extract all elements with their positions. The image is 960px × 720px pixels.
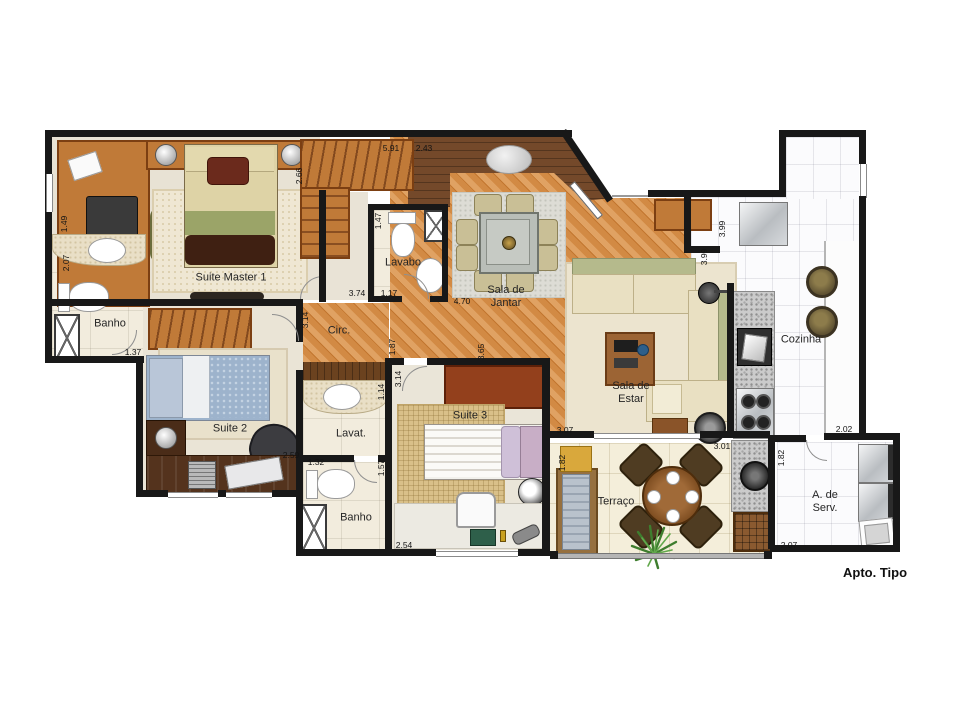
circ-threshold	[303, 362, 385, 380]
bed3-throw	[501, 426, 521, 478]
grill	[740, 461, 770, 491]
terrace-plate	[666, 471, 680, 485]
bed2-duvet	[209, 356, 267, 418]
lavabo-toilet	[391, 223, 415, 257]
bed2-pillows	[149, 358, 183, 418]
dim-label: 3.07	[557, 425, 574, 435]
dim-label: 3.99	[699, 249, 709, 266]
burner	[756, 394, 771, 409]
bedside-lamp-left	[155, 144, 177, 166]
dim-label: 2.54	[396, 540, 413, 550]
plant	[628, 524, 680, 570]
wall	[45, 130, 52, 363]
dryer	[858, 483, 897, 522]
banho1-shower	[54, 314, 80, 362]
dim-label: 2.02	[836, 424, 853, 434]
window	[168, 492, 218, 498]
bed-blanket-olive	[185, 211, 275, 235]
window	[226, 492, 272, 498]
banho1-toilet	[69, 282, 109, 312]
banho2-shower	[301, 504, 327, 552]
banho2-toilet	[317, 469, 355, 499]
wall	[770, 435, 806, 442]
wall	[768, 437, 775, 549]
wall-tv	[698, 282, 720, 304]
wall	[368, 204, 448, 210]
room-label-sala-de-estar: Sala de Estar	[612, 380, 649, 406]
dining-chair	[456, 245, 478, 271]
room-label-banho1: Banho	[94, 317, 126, 330]
dining-table	[479, 212, 539, 274]
wall	[430, 296, 448, 302]
dim-label: 2.59	[283, 450, 300, 460]
coffee-table-tray	[614, 340, 638, 352]
wall	[45, 299, 302, 306]
room-label-lavabo: Lavabo	[385, 256, 421, 269]
label-line: A. de	[812, 489, 838, 502]
dim-label: 3.01	[714, 441, 731, 451]
desk2-books	[188, 461, 216, 489]
coffee-table-decor	[637, 344, 649, 356]
wardrobe-suite2	[148, 308, 252, 350]
window	[436, 551, 518, 557]
dim-label: 3.14	[393, 371, 403, 388]
dim-label: 2.07	[781, 540, 798, 550]
banho1-sink	[88, 238, 126, 263]
stove	[736, 388, 774, 437]
bed-foot-throw	[185, 235, 275, 265]
dim-label: 1.82	[776, 450, 786, 467]
terrace-railing	[555, 553, 767, 559]
wall	[45, 130, 572, 137]
wall	[296, 455, 303, 556]
fridge	[739, 202, 788, 246]
window	[860, 164, 867, 198]
wall	[272, 490, 303, 497]
dim-label: 2.43	[416, 143, 433, 153]
wall	[136, 358, 143, 497]
wall	[392, 358, 404, 365]
wall	[550, 551, 558, 559]
wall	[45, 356, 144, 363]
dim-label: 2.66	[294, 168, 304, 185]
room-label-terraco: Terraço	[598, 495, 635, 508]
bar-stool	[806, 266, 838, 298]
room-label-lavat: Lavat.	[336, 427, 366, 440]
wall	[296, 370, 303, 459]
plan-title: Apto. Tipo	[843, 565, 907, 580]
bed2-sheet	[183, 356, 210, 418]
notebook	[470, 529, 496, 546]
dim-label: 1.17	[381, 288, 398, 298]
bed3-duvet	[425, 425, 501, 477]
burner	[741, 394, 756, 409]
suite3-chair	[456, 492, 496, 528]
room-label-suite2: Suite 2	[213, 422, 247, 435]
room-label-banho2: Banho	[340, 511, 372, 524]
burner	[741, 415, 756, 430]
wall	[859, 196, 866, 437]
label-line: Sala de	[612, 380, 649, 393]
wall	[700, 431, 770, 438]
room-label-suite-master1: Suite Master 1	[196, 271, 267, 284]
kitchen-sink-basin	[741, 334, 767, 363]
lavat-sink	[323, 384, 361, 410]
laundry-sink-basin	[864, 523, 890, 545]
wall	[389, 549, 436, 556]
tv-bracket	[714, 290, 728, 293]
dim-label: 1.37	[125, 347, 142, 357]
coffee-table-tray	[614, 358, 638, 368]
lounger-cushion	[562, 474, 590, 550]
room-label-circ: Circ.	[328, 324, 351, 337]
dim-label: 1.57	[376, 460, 386, 477]
wall	[218, 490, 226, 497]
wall	[319, 190, 326, 302]
burner	[756, 415, 771, 430]
sofa-pillow	[652, 384, 682, 414]
room-label-suite3: Suite 3	[453, 409, 487, 422]
floor-speaker	[694, 412, 726, 444]
bed-suite-master	[184, 144, 278, 268]
jantar-buffet	[654, 199, 712, 231]
label-line: Jantar	[487, 297, 524, 310]
dim-label: 1.82	[557, 455, 567, 472]
entry-console	[486, 145, 532, 174]
entry-threshold	[612, 195, 650, 197]
dim-label: 1.47	[373, 213, 383, 230]
wall	[779, 130, 786, 197]
dim-label: 5.91	[383, 143, 400, 153]
dining-chair	[536, 219, 558, 245]
terrace-plate	[666, 509, 680, 523]
dim-label: 1.32	[308, 457, 325, 467]
washer	[858, 444, 897, 483]
wall	[542, 358, 550, 556]
sliding-door	[594, 433, 700, 439]
wall	[893, 433, 900, 552]
dim-label: 3.74	[349, 288, 366, 298]
room-label-area-servico: A. de Serv.	[812, 489, 838, 515]
dim-label: 4.70	[454, 296, 471, 306]
lounger	[556, 468, 598, 558]
room-label-cozinha: Cozinha	[781, 333, 821, 346]
terrace-plate	[685, 490, 699, 504]
dining-centerpiece	[502, 236, 516, 250]
wall	[824, 433, 900, 440]
dining-chair	[456, 219, 478, 245]
label-line: Estar	[612, 393, 649, 406]
bed-suite2	[146, 355, 270, 421]
dim-label: 1.87	[387, 339, 397, 356]
wall	[296, 549, 393, 556]
wall	[764, 551, 772, 559]
sofa-top-seat	[572, 274, 634, 314]
wall	[442, 204, 448, 302]
wall	[648, 190, 786, 197]
dining-chair	[536, 245, 558, 271]
kitchen-sink	[737, 328, 772, 366]
dim-label: 3.99	[717, 221, 727, 238]
sofa-top-seat	[633, 274, 696, 314]
wardrobe-suite3	[444, 365, 550, 409]
dim-label: 3.14	[300, 312, 310, 329]
wall	[427, 358, 549, 365]
room-label-sala-de-jantar: Sala de Jantar	[487, 284, 524, 310]
pen	[500, 530, 506, 542]
wall	[779, 130, 866, 137]
bed-cushion	[207, 157, 249, 185]
terrace-table	[642, 466, 702, 526]
terrace-plate	[647, 490, 661, 504]
coffee-table	[605, 332, 655, 386]
bed-suite3	[424, 424, 548, 480]
dim-label: 1.49	[59, 216, 69, 233]
floor-cozinha-top	[786, 137, 859, 199]
wall	[859, 130, 866, 164]
wall	[296, 455, 354, 462]
dim-label: 1.14	[376, 384, 386, 401]
window	[46, 174, 53, 212]
label-line: Sala de	[487, 284, 524, 297]
dim-label: 3.65	[476, 344, 486, 361]
dim-label: 2.07	[61, 255, 71, 272]
wall	[727, 283, 734, 435]
wall	[684, 196, 691, 252]
floor-plan: Suite Master 1 Banho Suite 2 Circ. Lavab…	[0, 0, 960, 720]
label-line: Serv.	[812, 502, 838, 515]
nightstand-lamp	[155, 427, 177, 449]
